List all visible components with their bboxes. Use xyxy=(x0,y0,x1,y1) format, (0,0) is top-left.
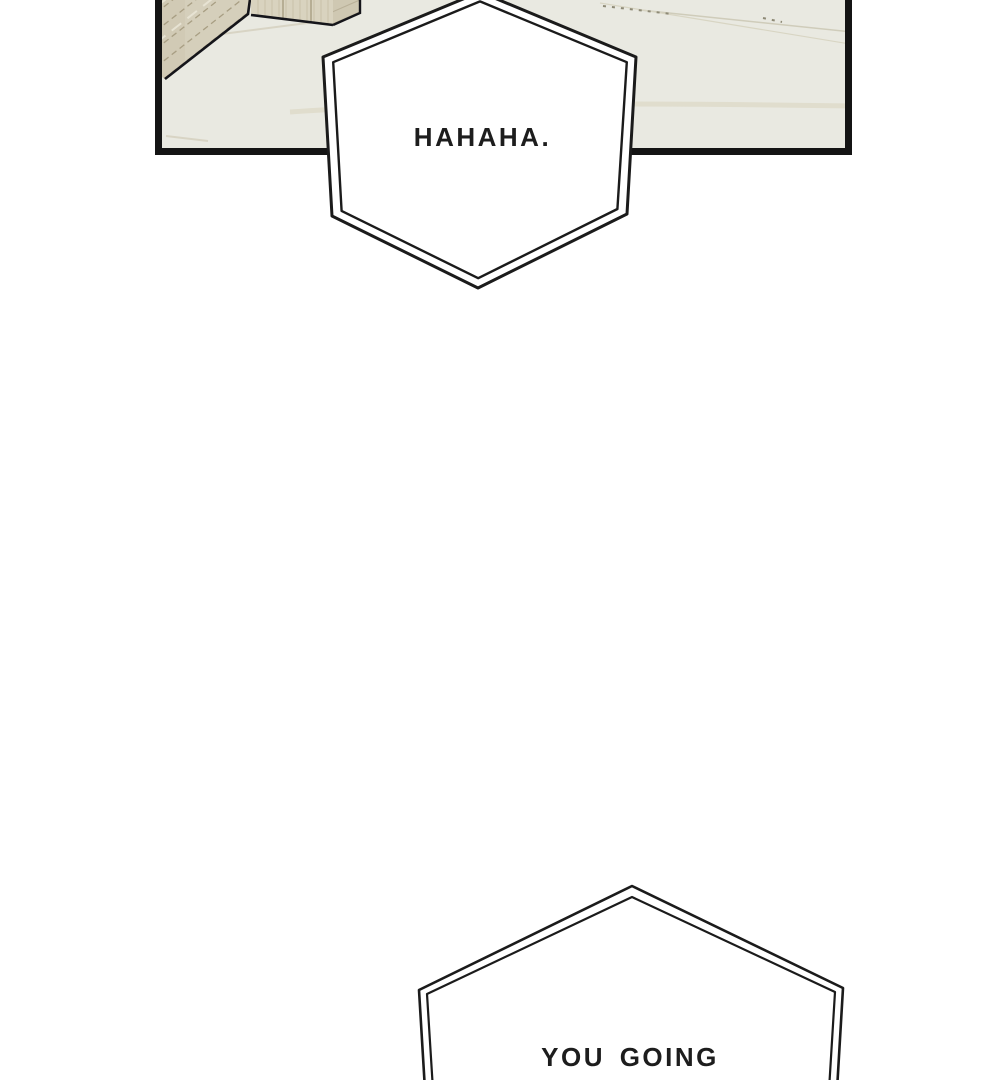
wood-wall xyxy=(162,0,254,103)
speech-bubble-1-text: HAHAHA. xyxy=(315,123,650,151)
speech-bubble-2-text: YOU GOING xyxy=(402,1043,858,1071)
comic-page: HAHAHA. YOU GOING xyxy=(0,0,1000,1080)
